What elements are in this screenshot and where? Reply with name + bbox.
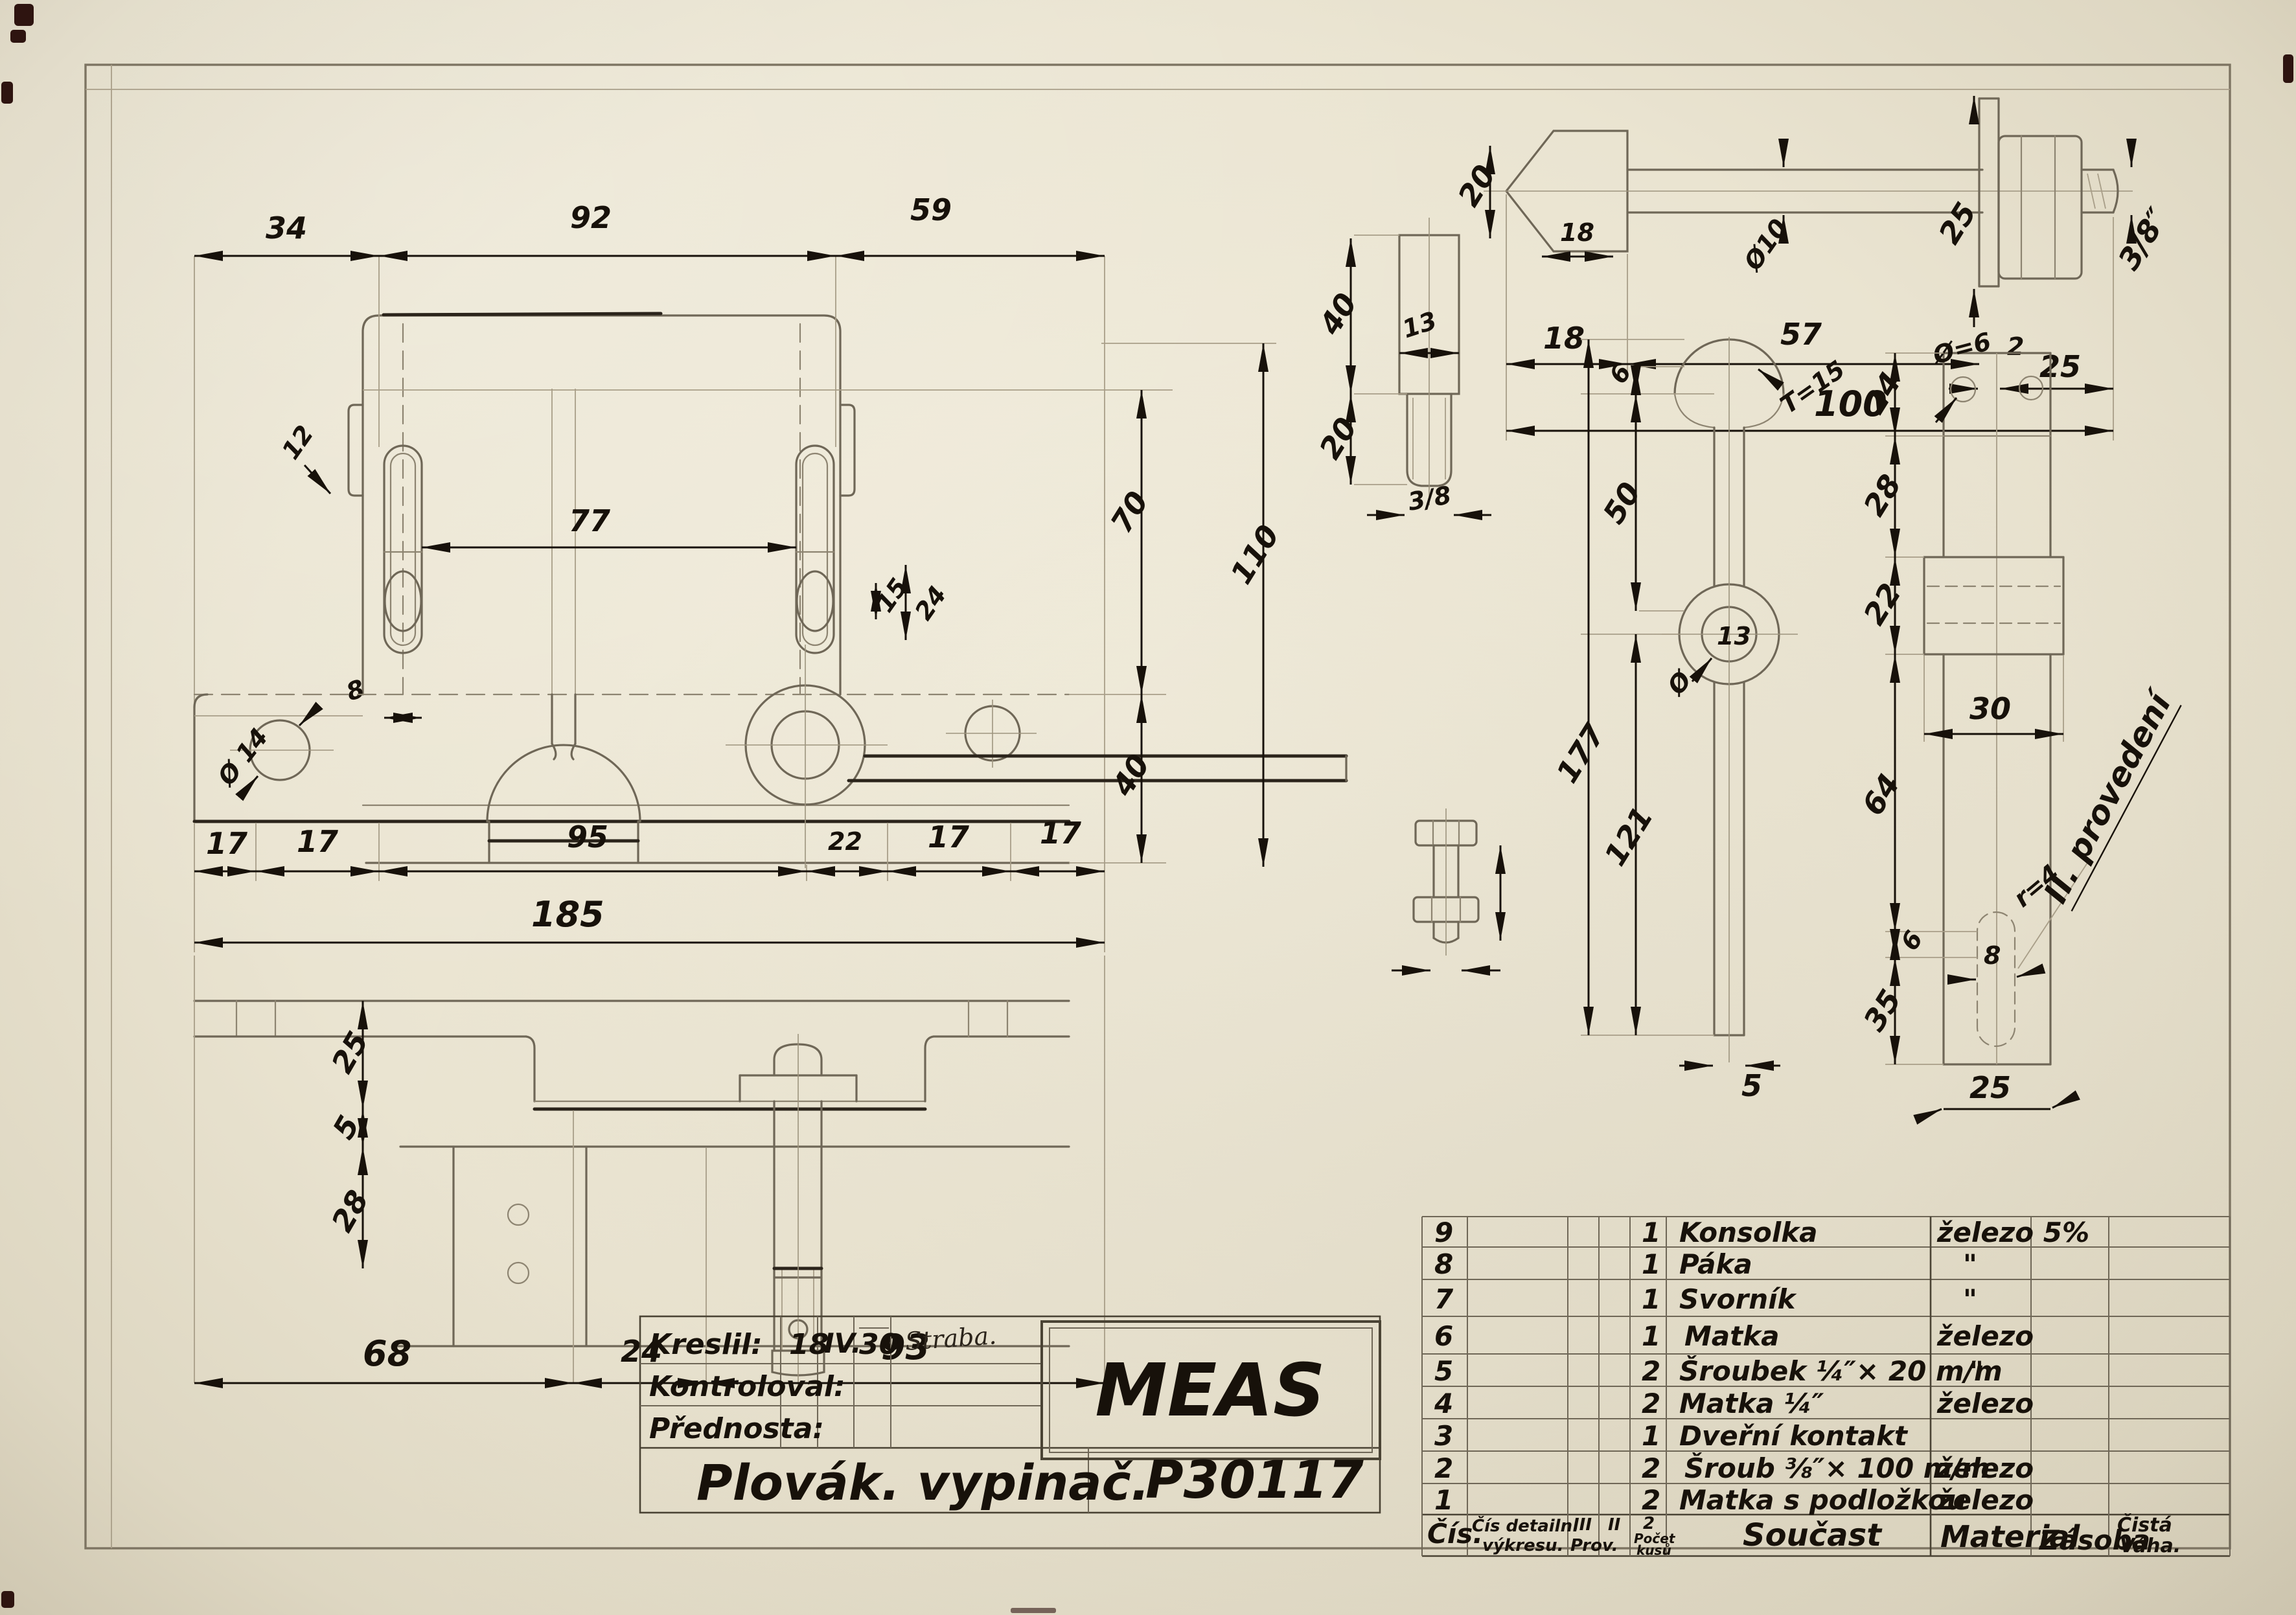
dim-bolt-38: 3/8″: [2111, 201, 2176, 276]
row3-name: Dveřní kontakt: [1679, 1420, 1909, 1452]
table-row: 5 2 Šroubek ¼″× 20 m/m ": [1434, 1355, 2003, 1387]
kreslil-signature: Straba.: [904, 1321, 998, 1356]
dim-hole-dia14: Ø 14: [211, 723, 273, 792]
dim-stud-20: 20: [1313, 411, 1364, 465]
header-prov2: II: [1608, 1515, 1621, 1535]
dim-bolt-dia10: Ø10: [1738, 214, 1793, 277]
row7-num: 7: [1434, 1283, 1454, 1315]
row7-name: Svorník: [1679, 1283, 1797, 1315]
detail-screw-14x20: [1392, 808, 1500, 970]
dim-tab-12: 12: [276, 420, 319, 465]
row1-name: Matka s podložkou: [1679, 1484, 1966, 1516]
dim-bolt-25: 25: [1932, 196, 1984, 250]
dim-bolt-18: 18: [1543, 321, 1585, 356]
kreslil-month: IV.: [824, 1327, 862, 1359]
view-top-plan: [349, 314, 1173, 694]
row4-num: 4: [1434, 1388, 1453, 1419]
header-soucast: Součast: [1743, 1517, 1883, 1553]
company-logo: MEAS: [1095, 1349, 1325, 1433]
row1-qty: 2: [1642, 1484, 1660, 1516]
header-qty-sub2: kusů: [1636, 1542, 1671, 1558]
table-header: Čís. Čís detailn. výkresu. III Prov. II …: [1427, 1513, 2181, 1558]
row9-qty: 1: [1642, 1217, 1660, 1248]
dim-stud-13: 13: [1399, 306, 1440, 343]
kreslil-label: Kreslil:: [649, 1328, 763, 1361]
dim-slot-24: 24: [909, 581, 952, 626]
dim-front-17b: 17: [297, 824, 338, 859]
dim-bracket-28: 28: [1857, 468, 1909, 522]
drawing-frame: [86, 65, 2230, 1548]
header-detail-2: výkresu.: [1482, 1536, 1564, 1555]
header-prov3-sub: Prov.: [1570, 1536, 1618, 1555]
dim-bracket-30: 30: [1969, 691, 2011, 726]
drawing-title: Plovák. vypinač.: [696, 1454, 1150, 1511]
dim-bracket-6: 6: [1895, 926, 1928, 956]
kreslil-day: 18: [789, 1328, 829, 1361]
row5-qty: 2: [1642, 1355, 1660, 1387]
row3-num: 3: [1434, 1420, 1453, 1452]
row2-material: železo: [1936, 1452, 2034, 1484]
dim-bracket-35: 35: [1857, 983, 1909, 1037]
header-vaha-2: Váha.: [2120, 1535, 2181, 1557]
dims-top-plan: 34 92 59 77 8 12 15 24: [194, 192, 1105, 823]
dim-slot-8: 8: [343, 674, 368, 707]
blueprint-sheet: 34 92 59 77 8 12 15 24 Ø 14: [0, 0, 2296, 1615]
dim-bottom-5: 5: [326, 1110, 367, 1145]
drawing-number: P30117: [1145, 1450, 1364, 1510]
header-prov3: III: [1573, 1515, 1592, 1535]
kontroloval-label: Kontroloval:: [649, 1370, 845, 1403]
dim-front-95: 95: [567, 819, 608, 854]
detail-stud: 40 20 13 3/8 18: [1312, 218, 1613, 516]
dim-stud-38: 3/8: [1406, 481, 1453, 516]
dim-bracket-25: 25: [1969, 1070, 2011, 1105]
row8-qty: 1: [1642, 1248, 1660, 1280]
row9-num: 9: [1434, 1217, 1453, 1248]
row7-qty: 1: [1642, 1283, 1660, 1315]
parts-table: 9 1 Konsolka železo 5% 8 1 Páka " 7 1 Sv…: [1422, 1217, 2230, 1558]
dim-lever-dia: Ø: [1661, 665, 1698, 702]
dims-front: 17 17 95 22 17 17 185 70 40 110: [194, 343, 1286, 952]
row1-num: 1: [1434, 1484, 1453, 1516]
prednosta-label: Přednosta:: [649, 1412, 824, 1445]
row4-qty: 2: [1642, 1388, 1660, 1419]
note-provedeni: II. provedení: [2036, 683, 2180, 910]
kreslil-year: 30: [859, 1328, 899, 1361]
dim-right-70: 70: [1104, 485, 1156, 539]
row7-material: ": [1963, 1283, 1977, 1315]
dim-lever-13: 13: [1717, 622, 1751, 650]
dim-bottom-28: 28: [325, 1184, 376, 1237]
table-row: 1 2 Matka s podložkou železo: [1434, 1484, 2034, 1516]
dim-bracket-22: 22: [1857, 577, 1909, 631]
dim-bolt-2: 2: [2007, 332, 2024, 361]
dim-bolt-57: 57: [1780, 317, 1822, 352]
dim-bolt-25b: 25: [2039, 349, 2081, 384]
detail-bolt-38x100: [1484, 98, 2133, 286]
table-row: 3 1 Dveřní kontakt: [1434, 1420, 1909, 1452]
dim-stud-40: 40: [1312, 287, 1364, 341]
dim-misc-18: 18: [1560, 218, 1594, 247]
dim-bolt-20: 20: [1451, 159, 1503, 212]
table-row: 6 1 Matka železo: [1434, 1320, 2034, 1352]
dim-slot-77: 77: [569, 503, 610, 538]
row6-material: železo: [1936, 1320, 2034, 1352]
dim-front-17a: 17: [206, 826, 247, 861]
row9-material: železo 5%: [1936, 1217, 2089, 1248]
row3-qty: 1: [1642, 1420, 1660, 1452]
dim-bracket-8: 8: [1984, 941, 2001, 970]
dim-top-34: 34: [266, 211, 307, 246]
row6-qty: 1: [1642, 1320, 1660, 1352]
table-row: 9 1 Konsolka železo 5%: [1434, 1217, 2089, 1248]
row9-name: Konsolka: [1679, 1217, 1818, 1248]
row4-name: Matka ¼″: [1679, 1388, 1824, 1419]
table-row: 2 2 Šroub ⅜″× 100 m/m železo: [1434, 1452, 2034, 1484]
row1-material: železo: [1936, 1484, 2034, 1516]
row5-num: 5: [1434, 1355, 1453, 1387]
dim-front-17c: 17: [928, 819, 969, 854]
row6-num: 6: [1434, 1320, 1453, 1352]
header-vaha-1: Čistá: [2117, 1513, 2172, 1537]
table-row: 4 2 Matka ¼″ železo: [1434, 1388, 2034, 1419]
table-row: 8 1 Páka ": [1434, 1248, 1977, 1280]
row5-name: Šroubek ¼″× 20 m/m: [1679, 1355, 2003, 1387]
dim-front-185: 185: [531, 894, 604, 935]
dim-right-110: 110: [1224, 519, 1287, 590]
header-detail-1: Čís detailn.: [1472, 1515, 1579, 1536]
row8-num: 8: [1434, 1248, 1453, 1280]
row5-material: ": [1969, 1355, 1984, 1387]
row4-material: železo: [1936, 1388, 2034, 1419]
detail-bracket: Ø=6 30 8 r=4 25 24: [1855, 327, 2183, 1117]
row8-material: ": [1963, 1248, 1977, 1280]
dim-bottom-68: 68: [363, 1333, 411, 1374]
dim-front-17d: 17: [1040, 816, 1081, 851]
row2-qty: 2: [1642, 1452, 1660, 1484]
row2-num: 2: [1434, 1452, 1453, 1484]
dim-front-22: 22: [828, 827, 862, 856]
dim-lever-5: 5: [1741, 1068, 1762, 1103]
dim-bracket-64: 64: [1855, 768, 1907, 821]
dim-top-92: 92: [570, 200, 612, 235]
view-front: Ø 14: [194, 645, 1346, 868]
table-row: 7 1 Svorník ": [1434, 1283, 1977, 1315]
dim-top-59: 59: [910, 192, 952, 227]
detail-lever: T=15 13 Ø 177 6 50 121 5: [1550, 337, 1850, 1103]
row8-name: Páka: [1679, 1248, 1752, 1280]
dim-lever-50: 50: [1596, 476, 1648, 530]
row6-name: Matka: [1684, 1320, 1780, 1352]
dim-lever-121: 121: [1598, 801, 1660, 872]
dim-bottom-25: 25: [325, 1025, 376, 1079]
dim-lever-177: 177: [1550, 718, 1613, 789]
